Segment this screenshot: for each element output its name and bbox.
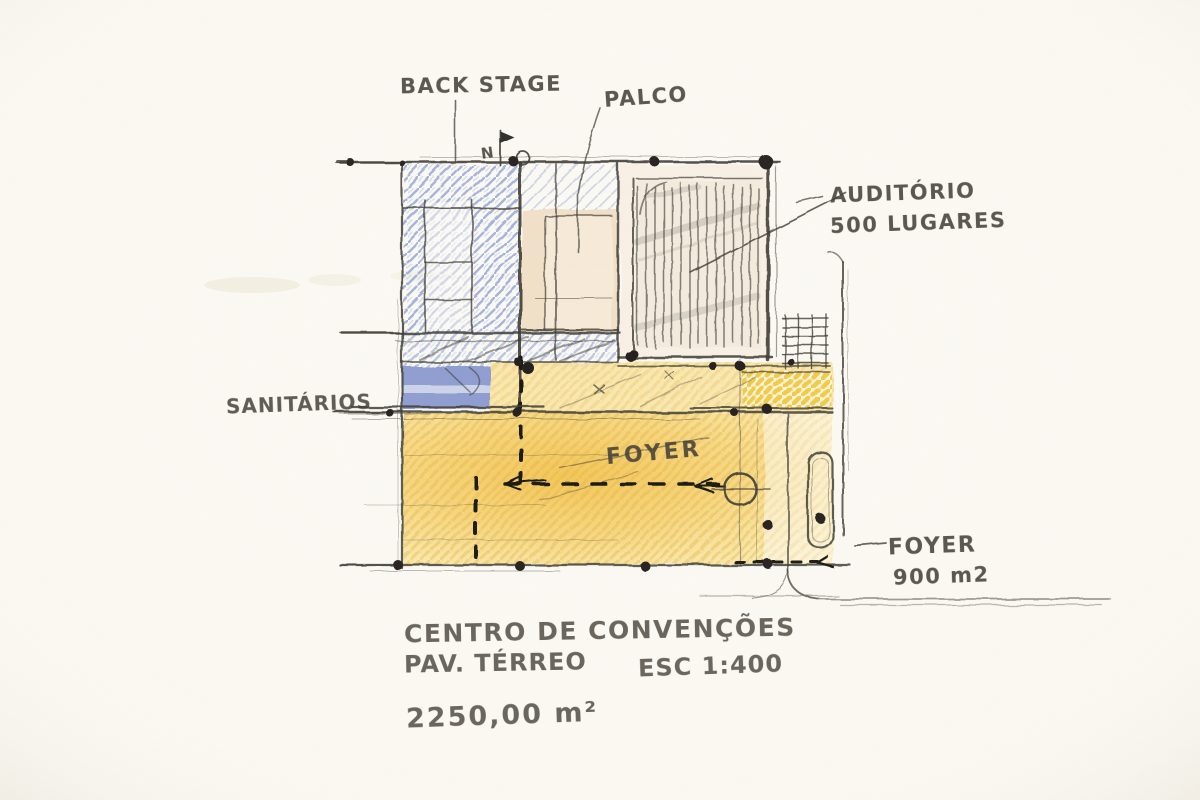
vignette	[0, 0, 1200, 800]
backstage-label: BACK STAGE	[400, 71, 562, 100]
sketch-canvas: BACK STAGE PALCO AUDITÓRIO 500 LUGARES S…	[0, 0, 1200, 800]
foyer-area-label-value: 900 m2	[893, 561, 990, 591]
title-scale: ESC 1:400	[638, 649, 784, 682]
title-floor: PAV. TÉRREO	[404, 647, 587, 678]
floor-plan-drawing	[0, 0, 1200, 800]
sanitarios-label: SANITÁRIOS	[226, 389, 373, 419]
foyer-area-label-name: FOYER	[888, 531, 977, 562]
north-label: N	[480, 143, 497, 164]
auditorio-label: AUDITÓRIO	[830, 177, 976, 208]
